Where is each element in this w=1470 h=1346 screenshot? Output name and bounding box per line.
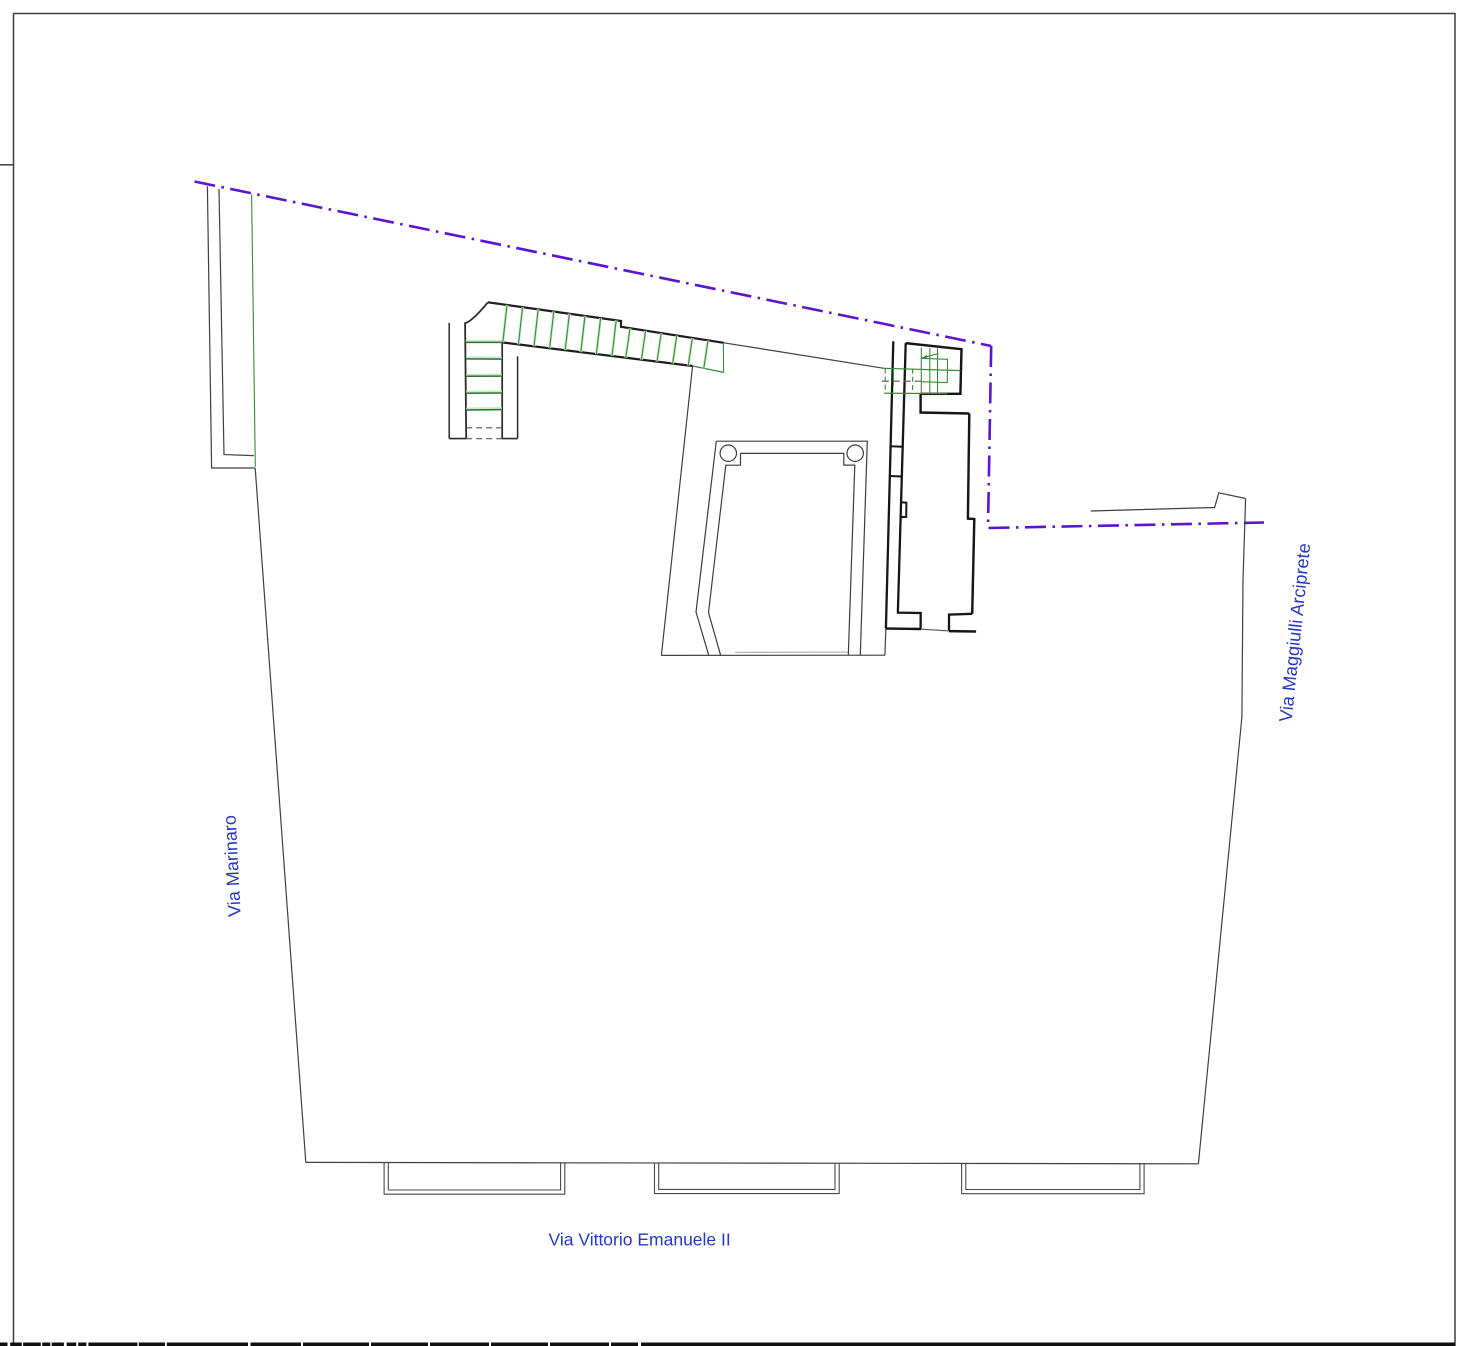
svg-text:Via Marinaro: Via Marinaro [219, 815, 244, 918]
svg-text:Via Vittorio Emanuele II: Via Vittorio Emanuele II [549, 1229, 731, 1249]
svg-text:Via Maggiulli Arciprete: Via Maggiulli Arciprete [1276, 542, 1315, 723]
